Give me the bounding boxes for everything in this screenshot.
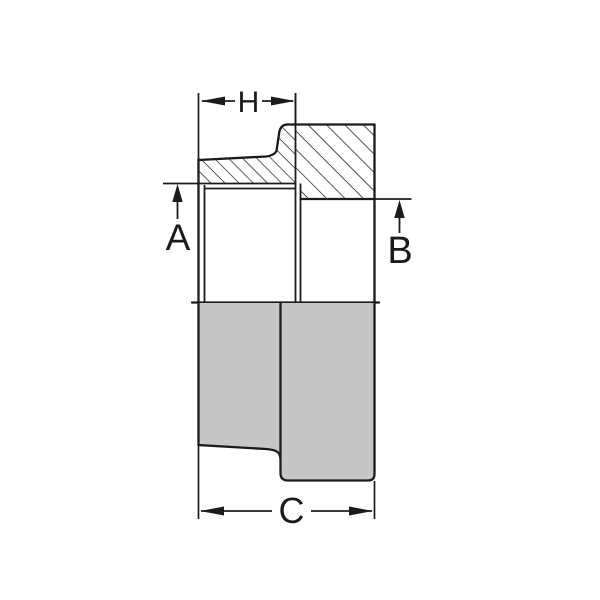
lower-exterior-view xyxy=(199,303,375,481)
flange-section-hatch xyxy=(296,125,375,200)
a-arrow-up xyxy=(172,184,182,202)
technical-drawing-canvas: H A B C xyxy=(0,0,600,600)
dimension-A: A xyxy=(166,184,191,258)
dimension-label-a: A xyxy=(166,217,191,258)
dimension-label-c: C xyxy=(279,490,305,531)
h-arrow-right xyxy=(271,97,295,106)
dimension-B: B xyxy=(375,199,413,272)
dimension-label-b: B xyxy=(387,230,412,272)
nose-outer-profile xyxy=(199,125,288,161)
h-arrow-left xyxy=(201,97,225,106)
body-lower-half-fill xyxy=(199,303,375,481)
cross-section-diagram: H A B C xyxy=(0,0,600,600)
dimension-label-h: H xyxy=(238,86,260,119)
b-arrow-up xyxy=(394,200,404,218)
nose-section-hatch xyxy=(199,125,296,184)
upper-section-view xyxy=(163,93,379,303)
c-arrow-left xyxy=(200,507,224,516)
c-arrow-right xyxy=(349,507,373,516)
